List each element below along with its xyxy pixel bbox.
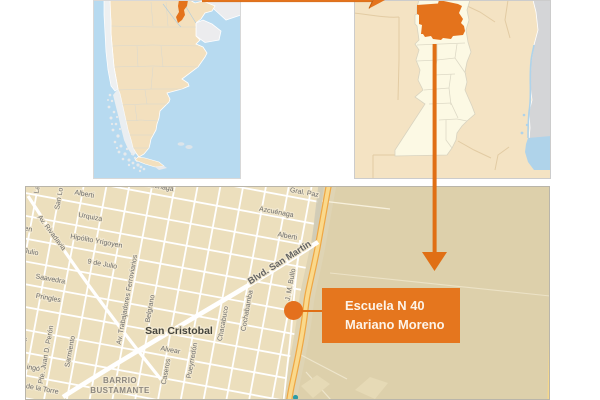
svg-text:La: La: [33, 186, 41, 194]
svg-text:en: en: [25, 225, 33, 233]
svg-text:BUSTAMANTE: BUSTAMANTE: [90, 386, 150, 395]
svg-text:San Cristobal: San Cristobal: [145, 325, 213, 337]
svg-text:BARRIO: BARRIO: [103, 376, 137, 385]
